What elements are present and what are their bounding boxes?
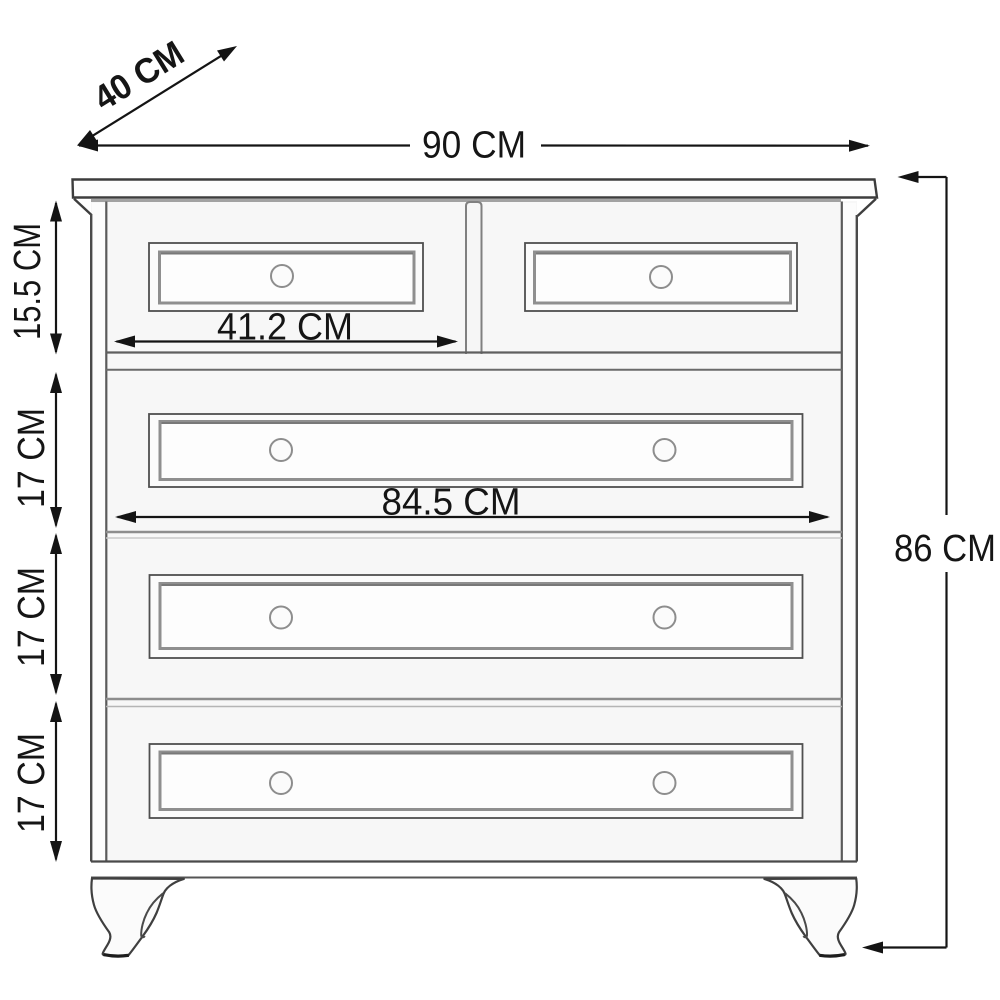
svg-text:41.2 CM: 41.2 CM [217, 307, 353, 349]
svg-text:17 CM: 17 CM [11, 408, 53, 508]
svg-text:90 CM: 90 CM [422, 125, 526, 167]
svg-text:86 CM: 86 CM [894, 528, 996, 570]
svg-text:17 CM: 17 CM [11, 733, 53, 833]
svg-text:84.5 CM: 84.5 CM [382, 482, 521, 524]
svg-text:17 CM: 17 CM [11, 567, 53, 667]
svg-text:15.5 CM: 15.5 CM [7, 223, 49, 340]
